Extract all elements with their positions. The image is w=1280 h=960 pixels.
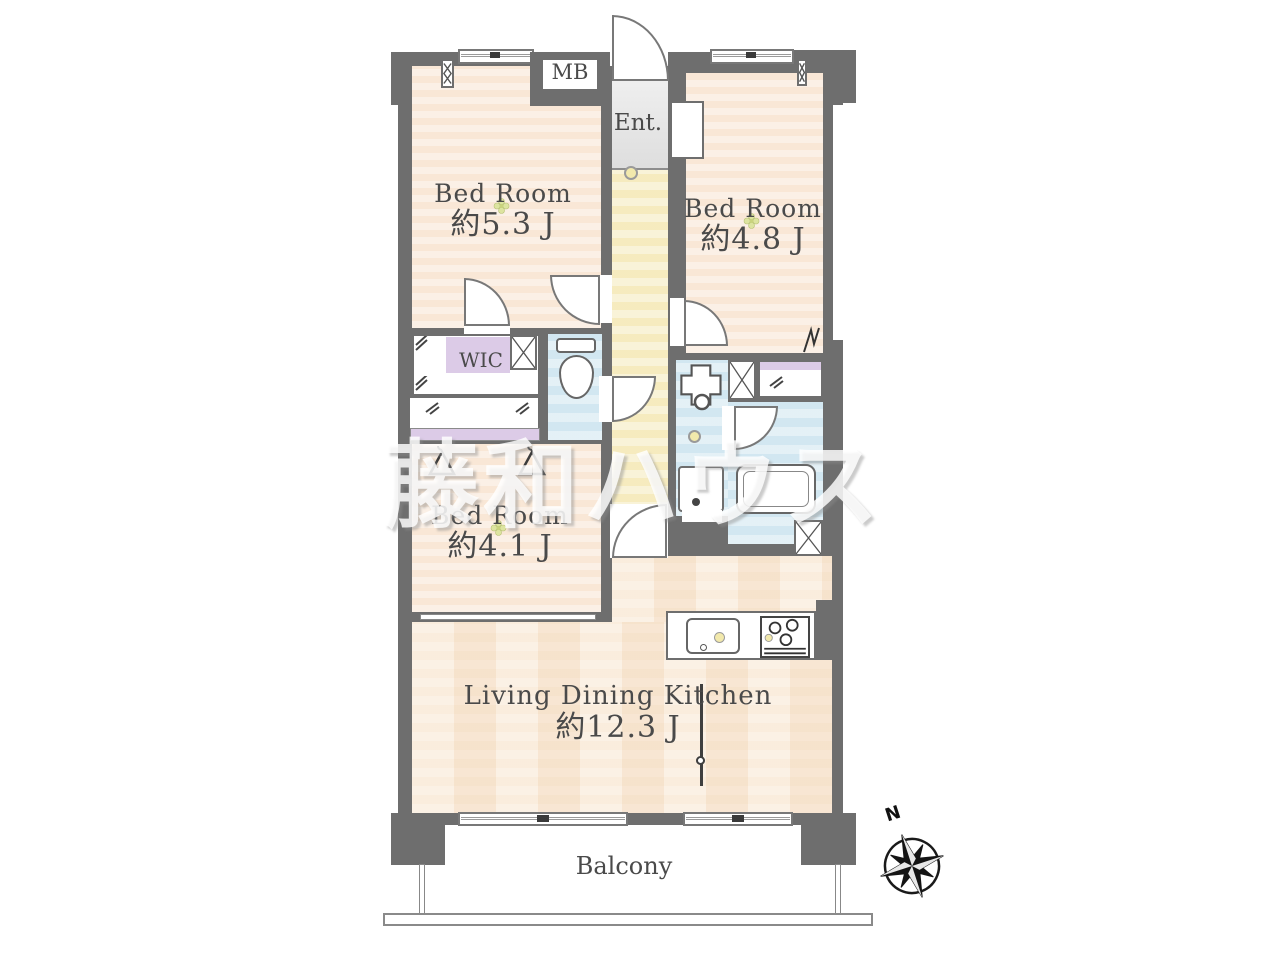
entrance-door-arc bbox=[612, 15, 669, 81]
bath-shaft-box bbox=[794, 520, 823, 556]
linen-slide-mark bbox=[768, 374, 786, 390]
closet-strip bbox=[410, 428, 540, 441]
bedroom2-area: 約4.8 J bbox=[684, 223, 822, 257]
wic-label: WIC bbox=[459, 348, 503, 372]
bedroom1-area: 約5.3 J bbox=[434, 208, 572, 242]
washing-machine-drain bbox=[692, 498, 700, 506]
bedroom3-slide-partition bbox=[420, 614, 596, 620]
hanger-icon-2 bbox=[516, 446, 548, 482]
balcony-railing bbox=[383, 913, 873, 926]
ldk-name: Living Dining Kitchen bbox=[464, 682, 773, 711]
bedroom1-name: Bed Room bbox=[434, 180, 572, 208]
hanger-icon bbox=[426, 446, 458, 482]
balcony-label: Balcony bbox=[576, 852, 673, 880]
closet-slide-mark-right bbox=[514, 400, 532, 416]
wic-shaft-box bbox=[510, 335, 537, 370]
ldk-area: 約12.3 J bbox=[464, 711, 773, 745]
bedroom3-label: Bed Room 約4.1 J bbox=[431, 502, 569, 564]
washbasin-icon bbox=[678, 362, 728, 412]
kitchen-sink bbox=[686, 618, 740, 654]
bedroom2-name: Bed Room bbox=[684, 195, 822, 223]
hallway-floor bbox=[612, 170, 668, 510]
bedroom3-name: Bed Room bbox=[431, 502, 569, 530]
linen-cabinet-strip bbox=[760, 362, 821, 370]
bedroom2-label: Bed Room 約4.8 J bbox=[684, 195, 822, 257]
compass-north-label: N bbox=[883, 802, 904, 827]
balcony-post-right bbox=[835, 864, 841, 916]
floor-plan-page: MB Ent. WIC bbox=[0, 0, 1280, 960]
bedroom2-window-latch bbox=[746, 52, 756, 58]
entrance-label: Ent. bbox=[614, 110, 662, 136]
washing-machine-pan bbox=[678, 466, 724, 512]
bedroom2-door-gap bbox=[670, 298, 684, 346]
compass-rose: N bbox=[862, 798, 954, 914]
kitchen-drain-dot bbox=[700, 644, 707, 651]
meter-box-label: MB bbox=[552, 60, 589, 84]
wic-folding-door-mark bbox=[414, 336, 430, 354]
balcony-post-left bbox=[419, 864, 425, 916]
ldk-window-right-latch bbox=[732, 815, 744, 822]
bedroom3-area: 約4.1 J bbox=[431, 530, 569, 564]
washroom-entry-gap bbox=[682, 510, 722, 522]
wic-folding-door-mark2 bbox=[414, 376, 430, 394]
bathtub bbox=[736, 464, 816, 514]
bedroom2-vent-icon bbox=[797, 59, 807, 86]
kitchen-faucet-dot bbox=[714, 632, 725, 643]
ldk-window-left-latch bbox=[537, 815, 549, 822]
washroom-light-dot bbox=[688, 430, 701, 443]
bedroom1-door-gap bbox=[599, 275, 612, 323]
shoe-cabinet bbox=[670, 101, 704, 159]
kitchen-side-wall bbox=[816, 600, 832, 660]
washroom-shaft-box bbox=[728, 360, 756, 400]
ldk-partition-knob bbox=[696, 756, 705, 765]
bedroom1-vent-icon bbox=[441, 59, 454, 88]
pillar-bottom-right bbox=[801, 813, 856, 865]
pillar-bottom-left bbox=[391, 813, 445, 865]
kitchen-stove bbox=[760, 616, 810, 658]
entrance-step-light bbox=[624, 166, 638, 180]
bathtub-inner bbox=[743, 471, 809, 507]
toilet-door-gap bbox=[599, 376, 612, 422]
wall-notch-right bbox=[833, 105, 843, 340]
bedroom1-window-latch bbox=[490, 52, 500, 58]
bedroom1-label: Bed Room 約5.3 J bbox=[434, 180, 572, 242]
toilet-tank bbox=[556, 338, 596, 353]
ldk-label: Living Dining Kitchen 約12.3 J bbox=[464, 682, 773, 745]
bathroom-door-gap bbox=[722, 406, 734, 450]
ac-sleeve-mark bbox=[800, 326, 822, 354]
closet-slide-mark-left bbox=[424, 400, 442, 416]
